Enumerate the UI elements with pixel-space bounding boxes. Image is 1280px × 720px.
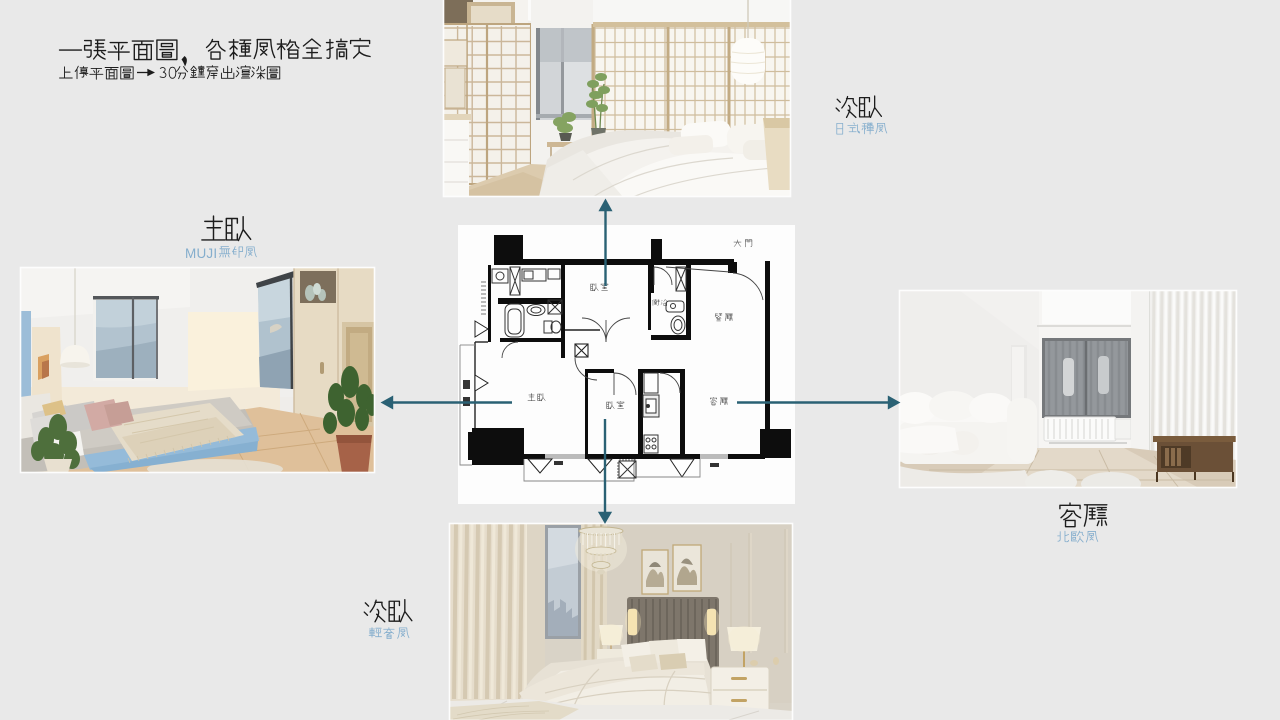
svg-text:MUJI: MUJI xyxy=(185,246,217,261)
